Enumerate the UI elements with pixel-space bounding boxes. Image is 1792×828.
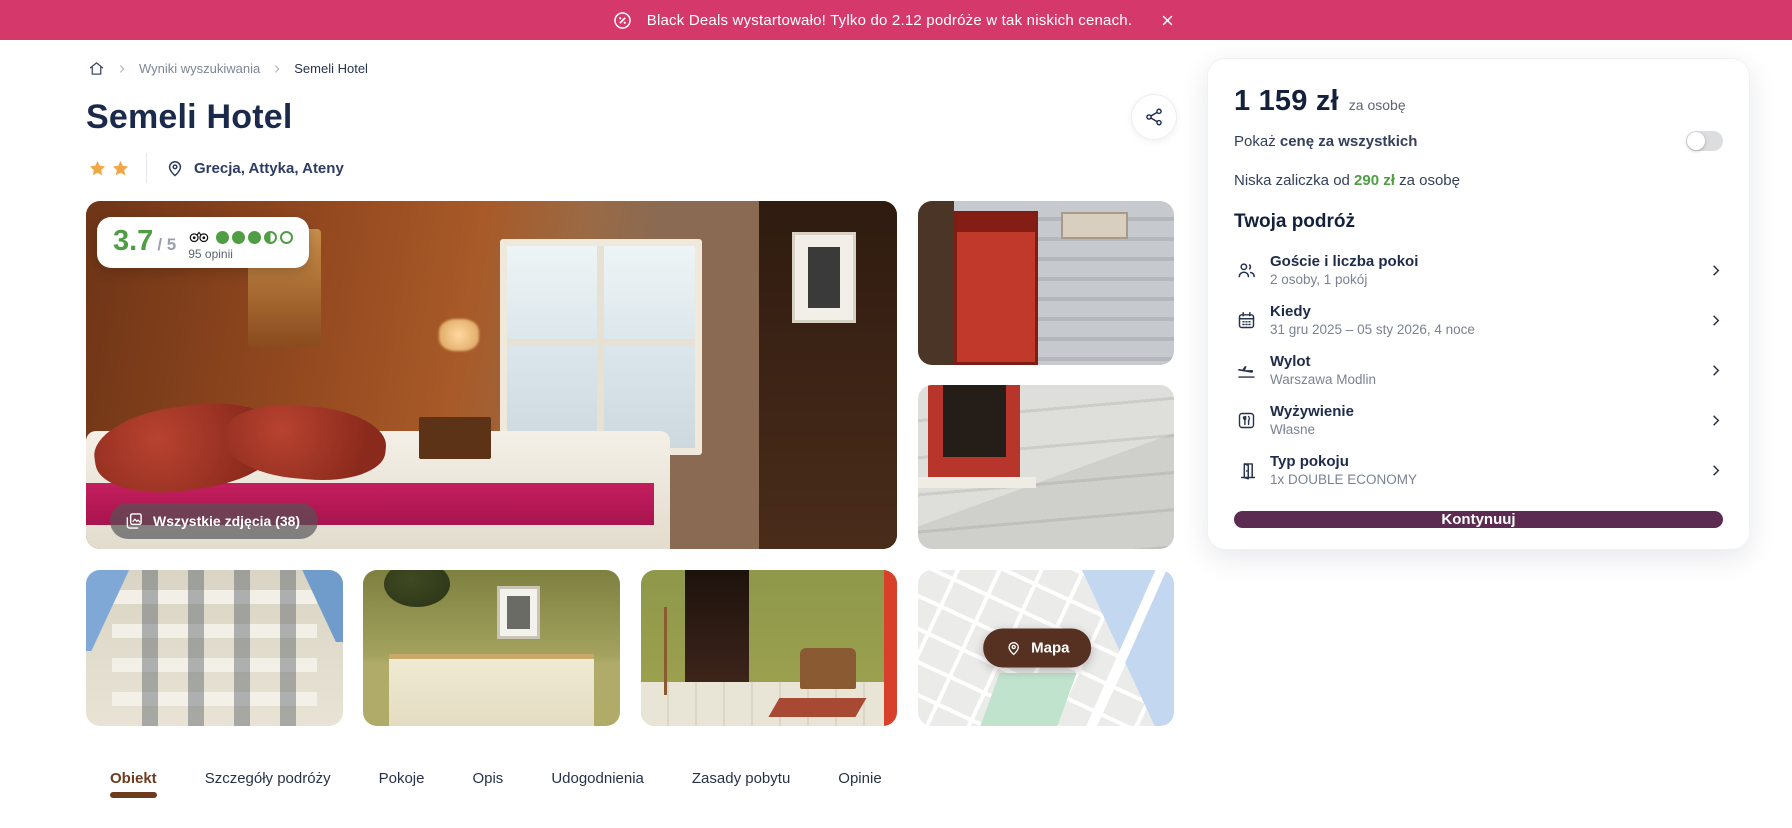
tab-zasady-pobytu[interactable]: Zasady pobytu <box>692 770 790 796</box>
share-button[interactable] <box>1131 94 1177 140</box>
map-button-label: Mapa <box>1031 640 1069 657</box>
star-icon <box>88 159 107 178</box>
hotel-meta: Grecja, Attyka, Ateny <box>88 153 344 183</box>
percent-badge-icon <box>612 10 633 31</box>
page-title: Semeli Hotel <box>86 98 292 137</box>
thumb-photo-facade-window[interactable] <box>918 385 1174 549</box>
chevron-right-icon <box>1708 263 1723 278</box>
trip-row-guests[interactable]: Goście i liczba pokoi 2 osoby, 1 pokój <box>1234 245 1723 295</box>
all-photos-button[interactable]: Wszystkie zdjęcia (38) <box>110 503 318 539</box>
price-suffix: za osobę <box>1349 97 1406 113</box>
price: 1 159 zł <box>1234 85 1339 118</box>
continue-button[interactable]: Kontynuuj <box>1234 511 1723 528</box>
trip-list: Goście i liczba pokoi 2 osoby, 1 pokój <box>1234 245 1723 495</box>
star-rating <box>88 159 130 178</box>
plane-icon <box>1234 360 1258 381</box>
photos-icon <box>124 511 144 531</box>
share-icon <box>1144 107 1164 127</box>
home-icon[interactable] <box>88 60 105 77</box>
location[interactable]: Grecja, Attyka, Ateny <box>165 158 344 178</box>
divider <box>146 153 147 183</box>
chevron-right-icon <box>1708 413 1723 428</box>
tab-szczegoly-podrozy[interactable]: Szczegóły podróży <box>205 770 331 796</box>
thumb-photo-lobby[interactable] <box>641 570 897 726</box>
breadcrumb: Wyniki wyszukiwania Semeli Hotel <box>88 60 368 77</box>
map-tile[interactable]: Mapa <box>918 570 1174 726</box>
show-price-label: Pokaż cenę za wszystkich <box>1234 133 1417 150</box>
thumb-photo-building[interactable] <box>86 570 343 726</box>
trip-row-room-type[interactable]: Typ pokoju 1x DOUBLE ECONOMY <box>1234 445 1723 495</box>
rating-scale: / 5 <box>157 235 176 254</box>
tab-opis[interactable]: Opis <box>472 770 503 796</box>
main-photo[interactable]: 3.7/ 5 95 opinii <box>86 201 897 549</box>
section-tabs: Obiekt Szczegóły podróży Pokoje Opis Udo… <box>110 770 882 796</box>
breadcrumb-current: Semeli Hotel <box>294 61 368 76</box>
booking-panel: 1 159 zł za osobę Pokaż cenę za wszystki… <box>1207 58 1750 550</box>
guests-icon <box>1234 260 1258 281</box>
meals-icon <box>1234 410 1258 431</box>
chevron-right-icon <box>1708 463 1723 478</box>
all-photos-label: Wszystkie zdjęcia (38) <box>153 513 300 529</box>
chevron-right-icon <box>1708 313 1723 328</box>
price-toggle[interactable] <box>1686 131 1723 151</box>
trip-row-dates[interactable]: Kiedy 31 gru 2025 – 05 sty 2026, 4 noce <box>1234 295 1723 345</box>
rating-badge[interactable]: 3.7/ 5 95 opinii <box>97 217 309 268</box>
thumb-photo-entrance[interactable] <box>918 201 1174 365</box>
tab-opinie[interactable]: Opinie <box>838 770 881 796</box>
tab-udogodnienia[interactable]: Udogodnienia <box>551 770 644 796</box>
close-icon[interactable] <box>1154 7 1180 33</box>
deposit-note: Niska zaliczka od 290 zł za osobę <box>1234 172 1723 189</box>
trip-section-title: Twoja podróż <box>1234 211 1723 233</box>
breadcrumb-search-results[interactable]: Wyniki wyszukiwania <box>139 61 260 76</box>
rating-score: 3.7 <box>113 225 153 257</box>
trip-row-meals[interactable]: Wyżywienie Własne <box>1234 395 1723 445</box>
tab-obiekt[interactable]: Obiekt <box>110 770 157 796</box>
trip-row-departure[interactable]: Wylot Warszawa Modlin <box>1234 345 1723 395</box>
photo-gallery: 3.7/ 5 95 opinii <box>86 201 1174 549</box>
location-pin-icon <box>165 158 185 178</box>
map-button[interactable]: Mapa <box>983 629 1091 668</box>
chevron-right-icon <box>1708 363 1723 378</box>
thumbnail-row: Mapa <box>86 570 1174 726</box>
promo-banner-text: Black Deals wystartowało! Tylko do 2.12 … <box>647 12 1132 29</box>
rating-dots <box>216 231 293 244</box>
promo-banner: Black Deals wystartowało! Tylko do 2.12 … <box>0 0 1792 40</box>
door-icon <box>1234 460 1258 481</box>
location-text: Grecja, Attyka, Ateny <box>194 160 344 177</box>
review-count: 95 opinii <box>188 247 293 261</box>
tab-pokoje[interactable]: Pokoje <box>379 770 425 796</box>
thumb-photo-reception[interactable] <box>363 570 620 726</box>
calendar-icon <box>1234 310 1258 331</box>
hotel-detail-page: Black Deals wystartowało! Tylko do 2.12 … <box>0 0 1792 828</box>
tripadvisor-owl-icon <box>188 230 210 244</box>
map-pin-icon <box>1005 640 1022 657</box>
star-icon <box>111 159 130 178</box>
